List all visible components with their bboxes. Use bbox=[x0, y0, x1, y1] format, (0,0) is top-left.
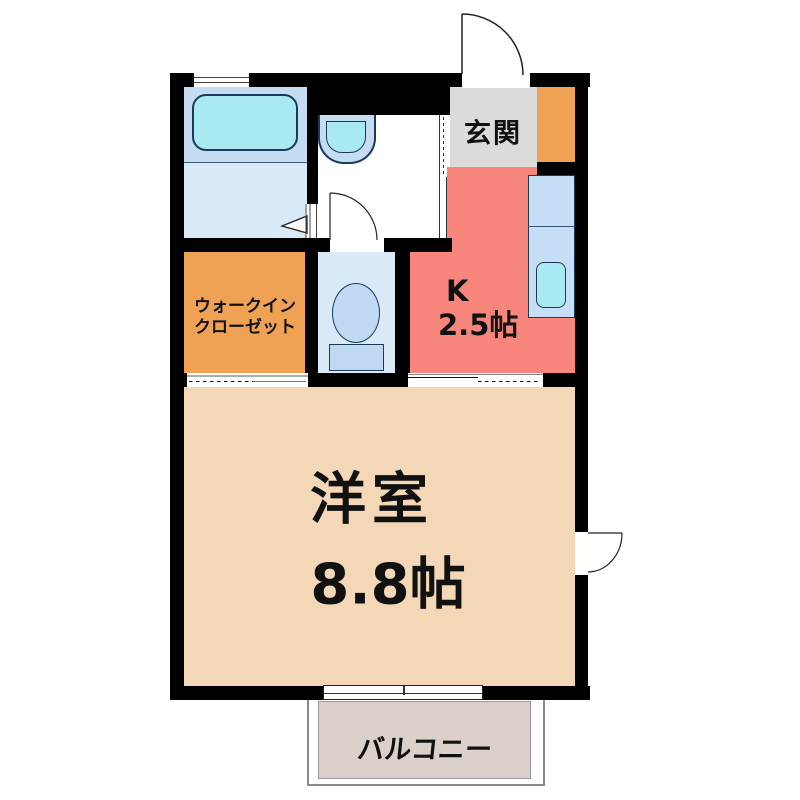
slider-panel-left bbox=[324, 688, 406, 694]
side-door-gap bbox=[575, 532, 588, 575]
window-line bbox=[194, 77, 249, 78]
main-room-label-name: 洋室 bbox=[310, 455, 434, 536]
kitchen-label: K 2.5帖 bbox=[438, 274, 548, 342]
slider-center-tick bbox=[403, 686, 405, 695]
wall-under-cabinet bbox=[537, 162, 588, 175]
main-room bbox=[184, 387, 575, 686]
washbasin-bowl bbox=[326, 121, 366, 153]
toilet-door-threshold bbox=[330, 238, 384, 252]
washroom-accordion-door bbox=[440, 115, 447, 238]
wall-bathroom-right bbox=[307, 87, 318, 204]
toilet-bowl bbox=[332, 283, 380, 343]
shoe-cabinet bbox=[537, 87, 575, 162]
bathroom-door-section bbox=[305, 204, 318, 238]
balcony-label: バルコニー bbox=[356, 728, 495, 767]
bathtub bbox=[192, 94, 298, 151]
main-room-label-size: 8.8帖 bbox=[310, 540, 465, 621]
window-line bbox=[194, 82, 249, 83]
kitchen-label-size: 2.5帖 bbox=[438, 308, 548, 342]
toilet-tank bbox=[329, 344, 384, 371]
wall-band-mid bbox=[184, 238, 452, 252]
closet-label-line2: クローゼット bbox=[194, 313, 296, 338]
wall-closet-toilet bbox=[305, 252, 318, 373]
kitchen-opening bbox=[408, 374, 543, 386]
entrance-threshold bbox=[462, 73, 530, 88]
slider-panel-right bbox=[402, 693, 482, 699]
closet-opening bbox=[187, 374, 308, 386]
wall-row-center bbox=[308, 373, 408, 387]
wall-toilet-kitchen bbox=[395, 252, 410, 373]
wall-row-left bbox=[170, 373, 187, 387]
entrance-door-swing bbox=[462, 14, 523, 75]
wall-bulkhead-washroom bbox=[307, 73, 450, 115]
side-door-swing bbox=[588, 533, 622, 572]
kitchen-label-abbr: K bbox=[438, 274, 548, 308]
floor-plan: 玄関 K 2.5帖 ウォークイン クローゼット 洋室 8.8帖 バルコニー bbox=[0, 0, 800, 800]
wall-row-right bbox=[543, 373, 588, 387]
bathroom-window bbox=[193, 73, 250, 87]
genkan-label: 玄関 bbox=[464, 112, 522, 151]
balcony-slider bbox=[323, 685, 483, 700]
counter-divider-line bbox=[528, 226, 575, 227]
